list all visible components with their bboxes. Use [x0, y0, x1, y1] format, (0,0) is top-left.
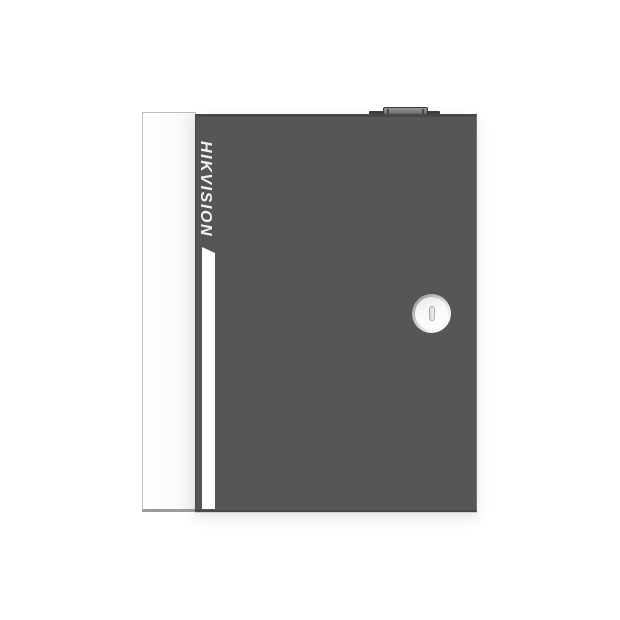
device-enclosure: HIKVISION — [0, 0, 620, 620]
accent-stripe — [202, 247, 215, 509]
keyhole-icon — [429, 306, 435, 321]
side-panel — [142, 112, 196, 512]
photo-canvas: HIKVISION — [0, 0, 620, 620]
cam-lock — [412, 294, 451, 333]
brand-label: HIKVISION — [197, 141, 214, 247]
lock-face — [415, 297, 448, 330]
